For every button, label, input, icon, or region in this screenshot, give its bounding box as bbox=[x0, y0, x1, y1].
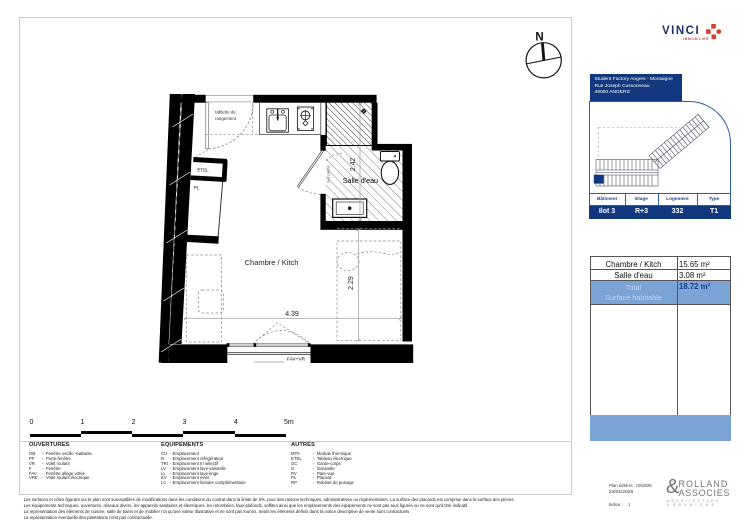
svg-text:faux plafond: faux plafond bbox=[327, 165, 331, 183]
svg-text:ETEL: ETEL bbox=[197, 167, 209, 173]
svg-text:2.29: 2.29 bbox=[348, 276, 355, 290]
svg-text:Salle d'eau: Salle d'eau bbox=[343, 176, 378, 185]
svg-text:2.42: 2.42 bbox=[350, 157, 357, 171]
svg-text:rangement: rangement bbox=[215, 116, 237, 121]
svg-text:Chambre / Kitch: Chambre / Kitch bbox=[245, 258, 299, 267]
svg-text:4.39: 4.39 bbox=[285, 311, 299, 318]
svg-text:FAV+VR: FAV+VR bbox=[287, 357, 306, 363]
svg-text:N: N bbox=[535, 32, 543, 44]
svg-text:tablette de: tablette de bbox=[215, 110, 236, 115]
svg-text:PL: PL bbox=[194, 185, 200, 190]
